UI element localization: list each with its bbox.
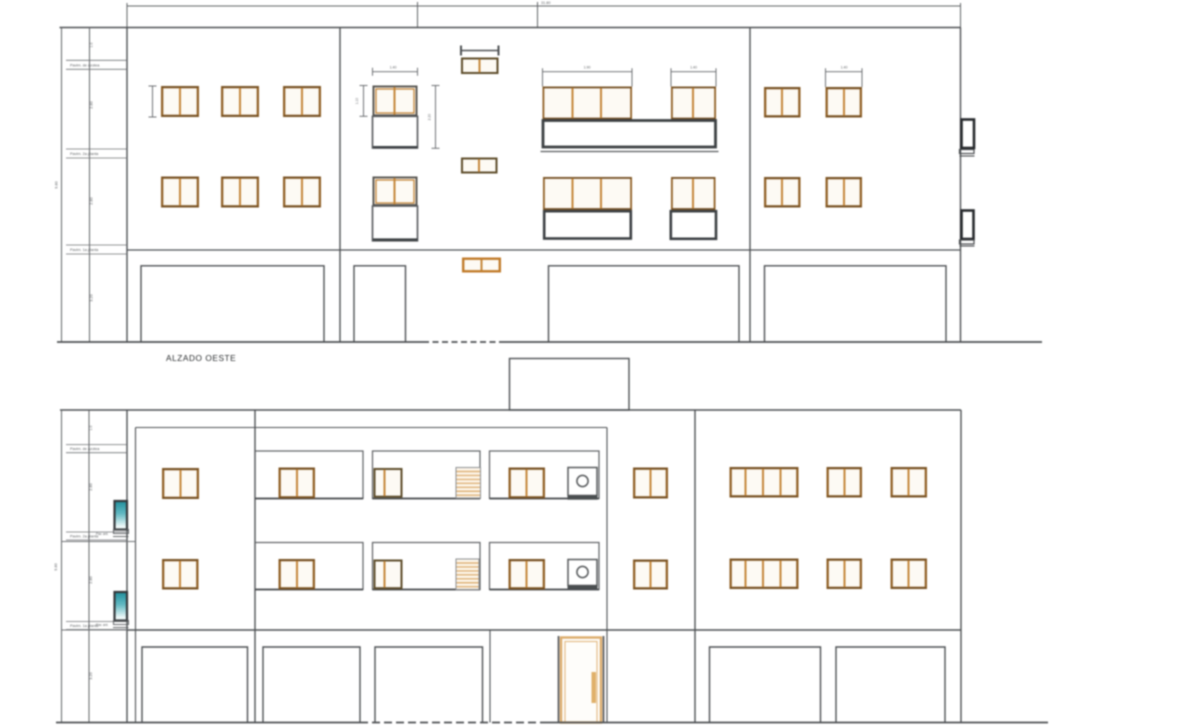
svg-text:9.80: 9.80 <box>55 181 59 188</box>
svg-text:31.80: 31.80 <box>541 1 551 5</box>
svg-text:Pavim. de azotea: Pavim. de azotea <box>70 447 100 451</box>
svg-text:9.80: 9.80 <box>54 563 58 570</box>
svg-text:2.80: 2.80 <box>90 197 94 204</box>
svg-text:1.40: 1.40 <box>390 66 397 70</box>
svg-text:ALZADO OESTE: ALZADO OESTE <box>166 353 236 363</box>
svg-text:2.20: 2.20 <box>428 114 432 121</box>
svg-text:1.0: 1.0 <box>90 43 94 48</box>
svg-text:3.20: 3.20 <box>90 294 94 301</box>
svg-text:Pavim. 2a planta: Pavim. 2a planta <box>70 535 99 539</box>
svg-text:1.90: 1.90 <box>584 66 591 70</box>
svg-text:1.40: 1.40 <box>690 66 697 70</box>
svg-text:2.80: 2.80 <box>89 483 93 490</box>
svg-text:Pav. ant.: Pav. ant. <box>96 532 108 536</box>
svg-text:Pavim. 2a planta: Pavim. 2a planta <box>70 152 99 156</box>
svg-text:2.80: 2.80 <box>90 101 94 108</box>
svg-text:Pavim. 1a planta: Pavim. 1a planta <box>70 624 99 628</box>
svg-text:1.40: 1.40 <box>841 66 848 70</box>
svg-text:3.20: 3.20 <box>89 672 93 679</box>
svg-text:2.80: 2.80 <box>89 576 93 583</box>
svg-text:1.10: 1.10 <box>355 98 359 105</box>
svg-text:Pavim. de azotea: Pavim. de azotea <box>70 63 100 67</box>
svg-text:Pavim. 1a planta: Pavim. 1a planta <box>70 248 99 252</box>
svg-text:1.0: 1.0 <box>89 426 93 431</box>
svg-text:Pav. ant.: Pav. ant. <box>96 623 108 627</box>
